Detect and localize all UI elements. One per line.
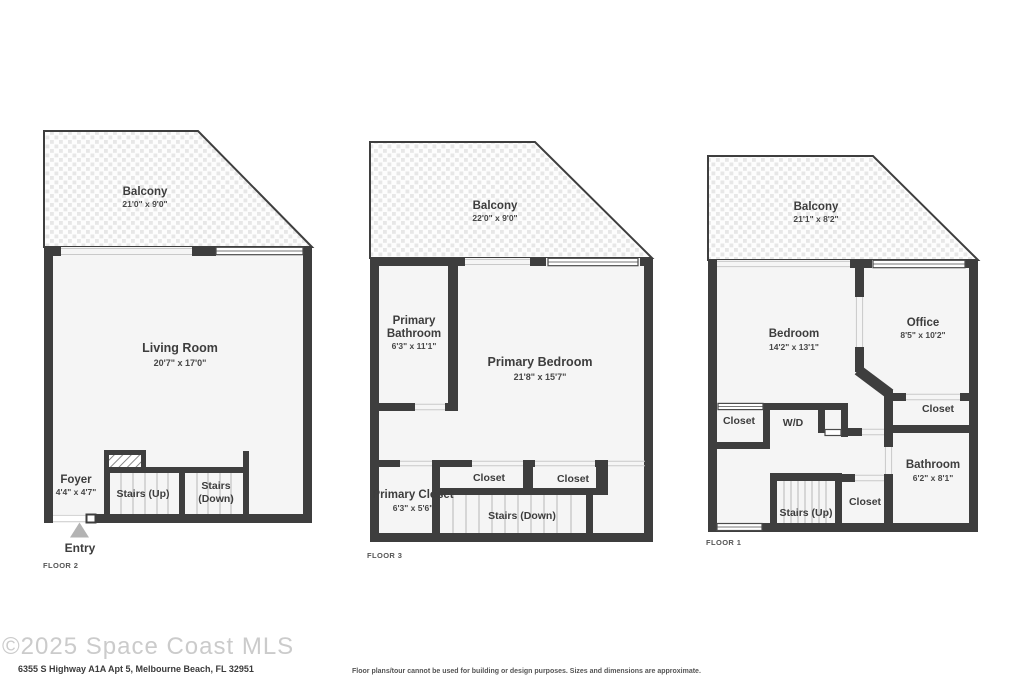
floor3-balcony-dims: 22'0" x 9'0": [472, 213, 517, 223]
floor2-windows: [216, 247, 303, 254]
floor2-stairs-up-label: Stairs (Up): [116, 488, 169, 500]
floor-plans-svg: Balcony 21'0" x 9'0" Living Room 20'7" x…: [0, 0, 1024, 683]
floor1-bedroom-closet-label: Closet: [723, 415, 756, 427]
floor2-balcony-dims: 21'0" x 9'0": [122, 199, 167, 209]
floor2-living-room-dims: 20'7" x 17'0": [154, 358, 207, 368]
floor1-balcony-label: Balcony: [794, 201, 839, 213]
watermark: ©2025 Space Coast MLS: [2, 633, 294, 661]
floor3-primary-bedroom-dims: 21'8" x 15'7": [514, 372, 567, 382]
floor2-living-room-label: Living Room: [142, 341, 218, 355]
floor1-office-closet-label: Closet: [922, 403, 955, 415]
floor1-bedroom-dims: 14'2" x 13'1": [769, 342, 819, 352]
property-address: 6355 S Highway A1A Apt 5, Melbourne Beac…: [18, 664, 254, 674]
floor1-balcony-area: [708, 156, 978, 260]
floor3-closet2-label: Closet: [557, 473, 590, 485]
floor3-primary-bedroom-label: Primary Bedroom: [488, 355, 593, 369]
floor3-title: FLOOR 3: [367, 551, 402, 560]
floorplan-canvas: Balcony 21'0" x 9'0" Living Room 20'7" x…: [0, 0, 1024, 683]
floor3-primary-bathroom-dims: 6'3" x 11'1": [392, 341, 437, 351]
floor3-balcony-label: Balcony: [473, 200, 518, 212]
floor1-stairs-up-label: Stairs (Up): [779, 507, 832, 519]
floor2-stairs-down-label-2: (Down): [198, 493, 234, 505]
floor1-office-dims: 8'5" x 10'2": [900, 330, 945, 340]
floor2-title: FLOOR 2: [43, 561, 78, 570]
floor3-primary-closet-label: Primary Closet: [372, 489, 453, 501]
disclaimer-text: Floor plans/tour cannot be used for buil…: [352, 668, 701, 675]
floor1-bathroom-label: Bathroom: [906, 459, 960, 471]
floor3-stairs-down-label: Stairs (Down): [488, 510, 556, 522]
floor3-primary-bathroom-label-1: Primary: [393, 315, 436, 327]
floor2-balcony-label: Balcony: [123, 186, 168, 198]
floor3-windows: [548, 258, 638, 265]
floor1-title: FLOOR 1: [706, 538, 741, 547]
floor3-closet1-label: Closet: [473, 472, 506, 484]
floor1-office-label: Office: [907, 317, 940, 329]
floor2-stair-landing-hatch: [109, 455, 141, 467]
floor1-wd-label: W/D: [783, 417, 804, 429]
floor1-stairs-closet-label: Closet: [849, 496, 882, 508]
entry-arrow: [70, 523, 89, 538]
floor3-plan: Balcony 22'0" x 9'0" Primary Bathroom 6'…: [367, 142, 653, 560]
utility-closet-door: [825, 430, 841, 436]
floor2-foyer-dims: 4'4" x 4'7": [56, 487, 96, 497]
entry-label: Entry: [65, 541, 96, 555]
floor3-primary-bathroom-label-2: Bathroom: [387, 328, 441, 340]
floor3-primary-closet-dims: 6'3" x 5'6": [393, 503, 433, 513]
floor2-foyer-label: Foyer: [60, 474, 92, 486]
floor2-balcony-area: [44, 131, 312, 247]
floor1-bathroom-dims: 6'2" x 8'1": [913, 473, 953, 483]
floor2-plan: Balcony 21'0" x 9'0" Living Room 20'7" x…: [43, 131, 312, 570]
floor1-balcony-dims: 21'1" x 8'2": [793, 214, 838, 224]
floor2-stairs-down-label-1: Stairs: [201, 480, 230, 492]
floor1-floor-area: [708, 260, 978, 532]
floor1-bedroom-label: Bedroom: [769, 328, 819, 340]
floor1-plan: Balcony 21'1" x 8'2" Bedroom 14'2" x 13'…: [706, 156, 978, 547]
